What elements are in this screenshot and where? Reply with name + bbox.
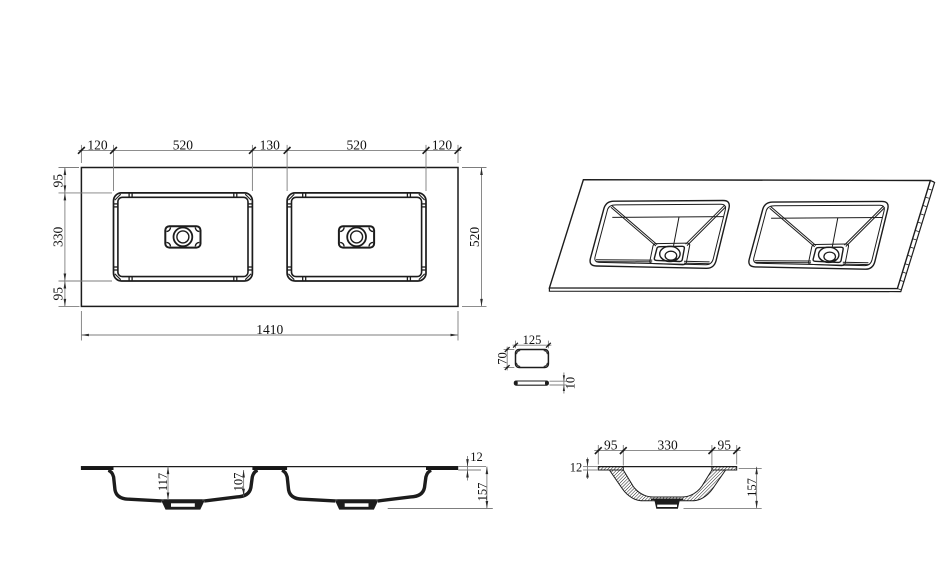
- svg-text:120: 120: [432, 137, 453, 152]
- svg-text:95: 95: [51, 174, 66, 188]
- svg-text:157: 157: [475, 483, 489, 502]
- svg-text:10: 10: [563, 377, 577, 390]
- svg-text:12: 12: [570, 461, 583, 475]
- svg-text:120: 120: [87, 137, 108, 152]
- svg-text:95: 95: [718, 438, 732, 453]
- svg-text:520: 520: [467, 227, 482, 248]
- svg-text:130: 130: [260, 137, 281, 152]
- svg-text:95: 95: [604, 438, 618, 453]
- svg-text:70: 70: [496, 352, 510, 365]
- svg-text:520: 520: [173, 137, 194, 152]
- svg-text:107: 107: [232, 473, 246, 492]
- svg-text:125: 125: [523, 333, 542, 347]
- svg-text:330: 330: [657, 438, 678, 453]
- svg-text:117: 117: [156, 473, 170, 491]
- svg-text:12: 12: [470, 450, 483, 464]
- svg-text:1410: 1410: [256, 322, 283, 337]
- svg-text:157: 157: [745, 478, 759, 497]
- svg-text:520: 520: [346, 137, 367, 152]
- svg-text:330: 330: [51, 227, 66, 248]
- svg-text:95: 95: [51, 287, 66, 301]
